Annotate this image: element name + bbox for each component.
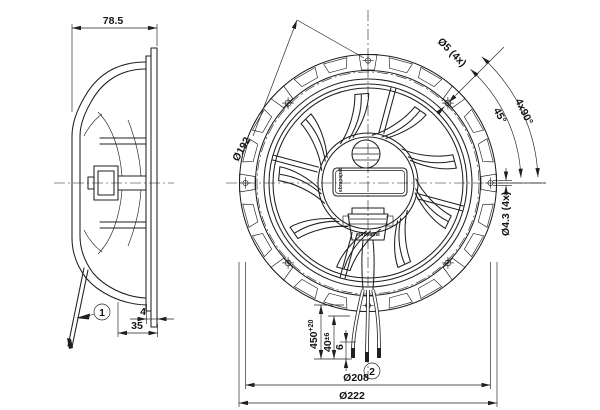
- wire-tip: [377, 348, 381, 358]
- side-wall-bracket: [67, 268, 88, 349]
- fan-technical-drawing: 78.5 1 4 35: [0, 0, 600, 410]
- blade: [372, 103, 427, 141]
- ring-cutout: [243, 202, 259, 228]
- ring-cutout: [387, 58, 413, 74]
- angle-offset-label: 45°: [491, 106, 509, 126]
- ring-cutout: [477, 139, 493, 165]
- blade-outline: [287, 203, 348, 256]
- flange-gap-label: 4: [140, 306, 146, 318]
- wires: [353, 290, 379, 353]
- strut: [379, 88, 396, 134]
- cable-gland: ebmpapst: [343, 208, 393, 240]
- brand-gland-text: ebmpapst: [356, 232, 380, 238]
- blade-outline: [372, 103, 427, 141]
- callout-1-label: 1: [99, 307, 105, 319]
- mounting-tab: [271, 86, 295, 110]
- brand-plate-text: ebmpapst: [338, 168, 344, 192]
- hole-pitch-label: Ø208: [343, 372, 369, 384]
- front-view: ebmpapst ebmpapst: [226, 10, 548, 407]
- blade-camber: [408, 136, 453, 181]
- ring-cutout: [387, 292, 413, 308]
- ring-cutout: [294, 67, 320, 88]
- dim-bolt-circle: Ø192: [230, 20, 364, 164]
- technical-drawing-page: 78.5 1 4 35: [0, 0, 600, 410]
- strut-edge: [379, 88, 391, 132]
- lead-length-label: 40±6: [322, 332, 334, 352]
- side-mounting-flange: [151, 48, 157, 327]
- mounting-tab: [271, 257, 295, 281]
- dim-cable: 450+20 40±6 6: [308, 305, 356, 371]
- cable-length-label: 450+20: [308, 319, 320, 349]
- side-width-label: 78.5: [103, 15, 124, 27]
- blade-outline: [291, 112, 337, 171]
- ring-cutout: [324, 292, 350, 308]
- side-hole-label: Ø4.3 (4x): [500, 192, 512, 236]
- blade-camber: [382, 108, 419, 140]
- dim-angles: 45° 4x90°: [470, 57, 546, 183]
- callout-2-label: 2: [369, 366, 375, 378]
- blade-outline: [322, 88, 384, 146]
- depth-label: 35: [131, 320, 143, 332]
- bracket-tip: [67, 338, 73, 349]
- blade: [401, 126, 462, 187]
- dim-depth: 35: [118, 302, 158, 337]
- dim-side-hole: Ø4.3 (4x): [493, 168, 512, 236]
- mounting-tab: [442, 257, 466, 281]
- wire-tip: [365, 352, 369, 362]
- blade-camber: [333, 95, 378, 139]
- blade: [291, 112, 337, 171]
- ring-cutout: [324, 58, 350, 74]
- callout-1: 1: [76, 304, 110, 320]
- ring-cutout: [477, 202, 493, 228]
- strut-edge: [384, 89, 396, 133]
- wire-tip: [351, 348, 355, 358]
- name-plate: ebmpapst: [333, 168, 407, 196]
- strip-length-label: 6: [334, 344, 346, 350]
- motor-cap: [352, 140, 380, 168]
- side-housing-outline: [72, 56, 151, 311]
- blade: [287, 203, 348, 256]
- bolt-circle-label: Ø192: [230, 135, 253, 163]
- corner-hole-label: Ø5 (4x): [435, 36, 469, 70]
- strut-edge: [274, 155, 318, 167]
- blade: [322, 88, 384, 146]
- side-view: 78.5 1 4 35: [54, 15, 174, 349]
- outer-diameter-label: Ø222: [339, 390, 365, 402]
- angle-spacing-label: 4x90°: [512, 97, 535, 127]
